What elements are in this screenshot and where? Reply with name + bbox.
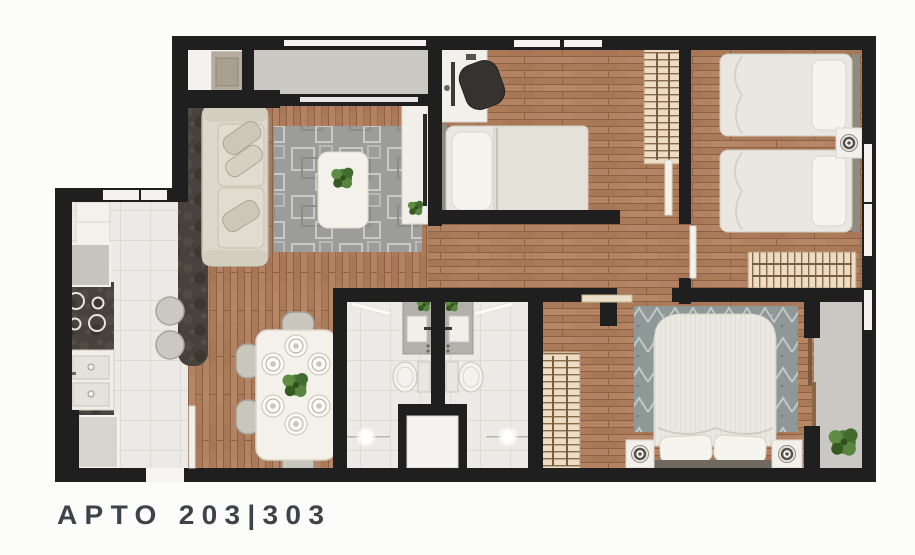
sliding-door [812,382,816,432]
plate [308,353,330,375]
window [564,40,602,47]
upper-cabinet [76,202,110,244]
plan-label: APTO 203|303 [57,500,331,531]
window [864,204,872,256]
window [864,144,872,202]
wall [672,288,864,302]
balcony-plant [829,428,858,455]
plant [331,168,353,189]
pillow [812,156,846,226]
wardrobe [748,252,856,288]
floor-plan [0,0,915,555]
door-leaf [582,295,632,302]
lamp [779,446,796,463]
wall [242,46,254,94]
window [864,290,872,330]
wall [172,90,280,108]
single-bed [720,150,860,232]
door-leaf [690,226,696,278]
wall [333,288,347,470]
pillow [812,60,846,130]
plate [285,413,307,435]
toilet [446,362,483,392]
ventilation-shaft [398,404,467,468]
plate [308,395,330,417]
window [141,190,167,200]
wall [600,288,617,326]
mug [444,85,450,91]
door-leaf [189,406,195,468]
lamp [841,135,858,152]
bar-stool [156,297,184,325]
plate [262,395,284,417]
plant [408,201,423,215]
window [514,40,560,47]
wall [333,288,600,302]
wall [172,36,188,192]
centerpiece-plant [283,373,309,397]
wall [804,288,820,338]
window [284,40,426,46]
wall [804,426,820,470]
headboard [852,54,860,136]
sliding-door [808,334,812,386]
wall [55,410,79,482]
pillow [659,435,712,464]
desk-item [466,54,476,60]
lamp [632,446,649,463]
window [300,97,418,102]
plate [285,335,307,357]
headboard [852,150,860,232]
toilet [393,362,430,392]
plate [262,353,284,375]
bar-stool [156,331,184,359]
wall [428,210,620,224]
entry-door-opening [146,468,184,482]
single-bed [720,54,860,136]
wall [679,36,691,224]
wall [528,302,543,470]
wall [862,36,876,482]
door-leaf [665,160,672,215]
coffee-table [318,152,368,228]
monitor [451,62,455,106]
pillow [713,435,766,464]
double-bed [650,314,780,470]
wall [428,36,442,226]
sofa [202,106,268,266]
fridge [66,244,110,286]
pillow [452,132,492,210]
single-bed [441,124,588,218]
wall [431,302,445,408]
kitchen-sink [68,350,114,410]
window [103,190,139,200]
walk-in-wardrobe [540,352,580,470]
wardrobe [644,48,682,164]
tv [423,114,427,206]
